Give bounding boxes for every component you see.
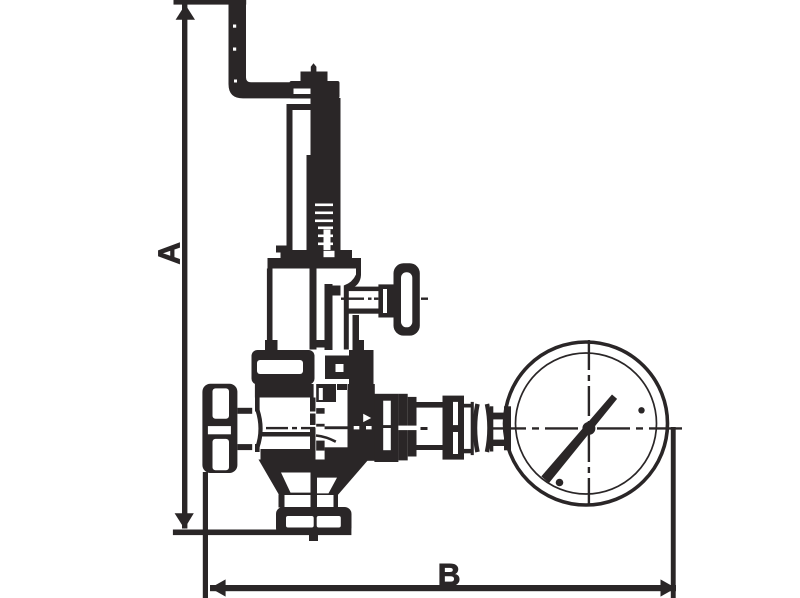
svg-text:B: B [438,557,461,593]
svg-text:A: A [152,242,187,264]
